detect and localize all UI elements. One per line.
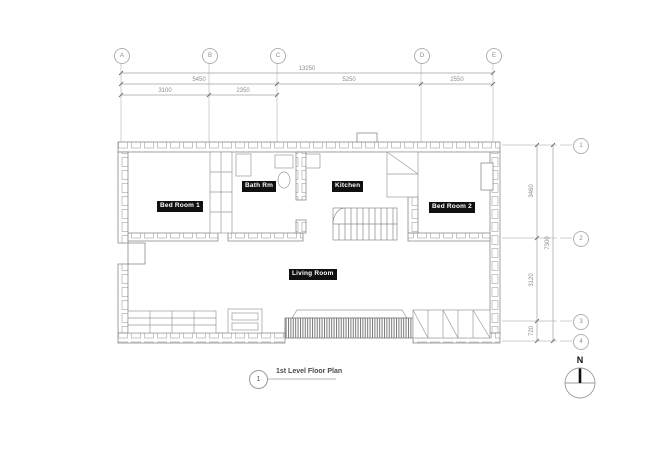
- sheet-title: 1st Level Floor Plan: [276, 368, 342, 375]
- dim-3-4: 720: [529, 326, 535, 336]
- north-label: N: [577, 356, 584, 365]
- dim-c-d: 5250: [342, 77, 355, 83]
- horizontal-dimension-lines: [121, 73, 493, 95]
- grid-label-A: A: [120, 53, 124, 59]
- grid-bubble-A: A: [114, 48, 130, 64]
- grid-label-E: E: [492, 53, 496, 59]
- entry-deck: [285, 310, 413, 338]
- room-tag-bathroom: Bath Rm: [242, 181, 276, 192]
- dim-b-c: 2350: [236, 88, 249, 94]
- north-indicator: [565, 368, 595, 398]
- title-number: 1: [257, 376, 261, 383]
- dim-2-3: 3120: [529, 273, 535, 286]
- grid-bubble-C: C: [270, 48, 286, 64]
- grid-bubble-B: B: [202, 48, 218, 64]
- grid-bubble-2: 2: [573, 231, 589, 247]
- room-tag-kitchen: Kitchen: [332, 181, 363, 192]
- dim-overall-width: 13250: [299, 66, 316, 72]
- plan-linework: [0, 0, 649, 459]
- grid-label-C: C: [276, 53, 280, 59]
- grid-label-B: B: [208, 53, 212, 59]
- grid-bubble-D: D: [414, 48, 430, 64]
- grid-label-2: 2: [579, 236, 582, 242]
- grid-label-1: 1: [579, 143, 582, 149]
- grid-label-3: 3: [579, 319, 582, 325]
- grid-bubble-3: 3: [573, 314, 589, 330]
- dim-overall-height: 7300: [545, 236, 551, 249]
- room-tag-bedroom1: Bed Room 1: [157, 201, 203, 212]
- room-tag-livingroom: Living Room: [289, 269, 337, 280]
- dim-1-2: 3460: [529, 184, 535, 197]
- dim-a-c: 5450: [192, 77, 205, 83]
- dim-a-b: 3100: [158, 88, 171, 94]
- floor-plan-sheet: A B C D E 1 2 3 4 13250 5450 5250 2550 3…: [0, 0, 649, 459]
- dim-d-e: 2550: [450, 77, 463, 83]
- grid-label-D: D: [420, 53, 424, 59]
- room-tag-bedroom2: Bed Room 2: [429, 202, 475, 213]
- title-number-bubble: 1: [249, 370, 268, 389]
- grid-bubble-E: E: [486, 48, 502, 64]
- grid-label-4: 4: [579, 339, 582, 345]
- stair: [333, 208, 397, 240]
- grid-bubble-4: 4: [573, 334, 589, 350]
- grid-bubble-1: 1: [573, 138, 589, 154]
- column-grid-stems: [121, 62, 493, 142]
